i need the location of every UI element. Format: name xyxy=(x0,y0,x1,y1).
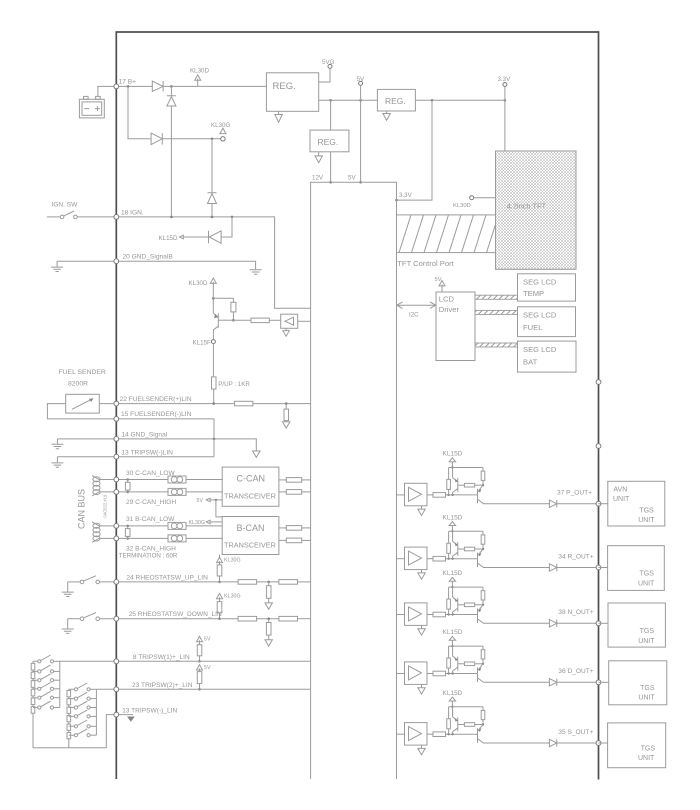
svg-text:KL30G: KL30G xyxy=(189,520,206,526)
svg-text:5V: 5V xyxy=(204,665,211,671)
svg-text:20 GND_SignalB: 20 GND_SignalB xyxy=(123,254,174,261)
svg-text:8200R: 8200R xyxy=(68,381,88,388)
svg-text:22 FUELSENDER(+)LIN: 22 FUELSENDER(+)LIN xyxy=(120,396,192,403)
svg-text:FUEL SENDER: FUEL SENDER xyxy=(59,369,106,376)
svg-text:34 R_OUT+: 34 R_OUT+ xyxy=(558,553,594,560)
svg-text:17 B+: 17 B+ xyxy=(119,79,137,86)
svg-text:04C022 #19: 04C022 #19 xyxy=(103,494,108,517)
svg-text:TGS: TGS xyxy=(640,685,655,692)
svg-text:TEMP: TEMP xyxy=(523,289,544,298)
svg-text:UNIT: UNIT xyxy=(638,755,655,762)
svg-text:P/UP : 1KR: P/UP : 1KR xyxy=(218,381,250,388)
svg-text:5V: 5V xyxy=(197,498,204,504)
svg-text:13 TRIPSW(-)LIN: 13 TRIPSW(-)LIN xyxy=(121,450,173,457)
svg-text:24 RHEOSTATSW_UP_LIN: 24 RHEOSTATSW_UP_LIN xyxy=(126,574,208,581)
svg-text:18 IGN.: 18 IGN. xyxy=(121,209,144,216)
svg-text:LCD: LCD xyxy=(439,294,455,303)
svg-text:C-CAN: C-CAN xyxy=(237,474,266,484)
svg-text:AVN: AVN xyxy=(613,486,627,493)
svg-text:35 S_OUT+: 35 S_OUT+ xyxy=(558,729,593,736)
svg-text:KL30G: KL30G xyxy=(224,558,241,564)
svg-text:REG.: REG. xyxy=(318,137,339,147)
svg-text:5V: 5V xyxy=(204,637,211,643)
svg-text:KL30G: KL30G xyxy=(211,122,230,129)
svg-text:KL30D: KL30D xyxy=(453,203,471,209)
svg-text:KL15D: KL15D xyxy=(159,235,178,242)
svg-text:23 TRIPSW(2)+_LIN: 23 TRIPSW(2)+_LIN xyxy=(132,682,193,689)
svg-text:38 N_OUT+: 38 N_OUT+ xyxy=(558,609,594,616)
svg-text:32 B-CAN_HIGH: 32 B-CAN_HIGH xyxy=(126,546,176,553)
svg-text:13 TRIPSW(-)_LIN: 13 TRIPSW(-)_LIN xyxy=(122,707,177,714)
svg-text:SEG LCD: SEG LCD xyxy=(523,277,557,286)
svg-text:TGS: TGS xyxy=(639,507,654,514)
svg-text:UNIT: UNIT xyxy=(638,638,655,645)
svg-text:TGS: TGS xyxy=(640,628,655,635)
svg-text:TGS: TGS xyxy=(640,571,655,578)
svg-text:12V: 12V xyxy=(312,174,324,181)
svg-text:3.3V: 3.3V xyxy=(399,192,413,199)
svg-text:SEG LCD: SEG LCD xyxy=(523,310,557,319)
svg-text:14 GND_Signal: 14 GND_Signal xyxy=(121,431,167,438)
svg-text:UNIT: UNIT xyxy=(638,580,655,587)
svg-text:15 FUELSENDER(-)LIN: 15 FUELSENDER(-)LIN xyxy=(121,411,192,418)
svg-text:36 D_OUT+: 36 D_OUT+ xyxy=(558,668,594,675)
svg-text:Driver: Driver xyxy=(439,305,460,314)
svg-text:KL15F: KL15F xyxy=(193,340,211,347)
svg-text:UNIT: UNIT xyxy=(613,496,630,503)
svg-text:KL30G: KL30G xyxy=(224,594,241,600)
svg-text:B-CAN: B-CAN xyxy=(237,523,265,533)
svg-text:8 TRIPSW(1)+_LIN: 8 TRIPSW(1)+_LIN xyxy=(133,654,190,661)
svg-text:REG.: REG. xyxy=(385,96,406,106)
svg-text:IGN. SW: IGN. SW xyxy=(51,202,78,209)
svg-text:KL30D: KL30D xyxy=(190,68,209,75)
svg-text:UNIT: UNIT xyxy=(638,517,655,524)
svg-text:25 RHEOSTATSW_DOWN_LIN: 25 RHEOSTATSW_DOWN_LIN xyxy=(129,611,222,618)
svg-text:SEG LCD: SEG LCD xyxy=(523,345,557,354)
svg-text:TERMINATION : 60R: TERMINATION : 60R xyxy=(119,553,178,560)
svg-text:5V: 5V xyxy=(348,174,356,181)
svg-text:KL30D: KL30D xyxy=(189,280,208,287)
svg-text:37 P_OUT+: 37 P_OUT+ xyxy=(557,490,592,497)
svg-text:3.3V: 3.3V xyxy=(498,76,512,83)
svg-text:TFT Control Port: TFT Control Port xyxy=(397,259,454,268)
svg-text:BAT: BAT xyxy=(523,357,538,366)
svg-text:5V: 5V xyxy=(435,277,442,283)
svg-text:4.2inch TFT: 4.2inch TFT xyxy=(507,202,547,211)
svg-text:29 C-CAN_HIGH: 29 C-CAN_HIGH xyxy=(126,499,176,506)
svg-text:TRANSCEIVER: TRANSCEIVER xyxy=(224,492,276,501)
svg-text:I2C: I2C xyxy=(409,312,419,319)
svg-text:TRANSCEIVER: TRANSCEIVER xyxy=(224,540,276,549)
svg-text:FUEL: FUEL xyxy=(523,323,542,332)
svg-text:REG.: REG. xyxy=(273,81,296,92)
svg-text:CAN BUS: CAN BUS xyxy=(77,489,87,529)
svg-text:TGS: TGS xyxy=(641,745,656,752)
svg-text:31 B-CAN_LOW: 31 B-CAN_LOW xyxy=(126,516,175,523)
svg-text:UNIT: UNIT xyxy=(638,695,655,702)
